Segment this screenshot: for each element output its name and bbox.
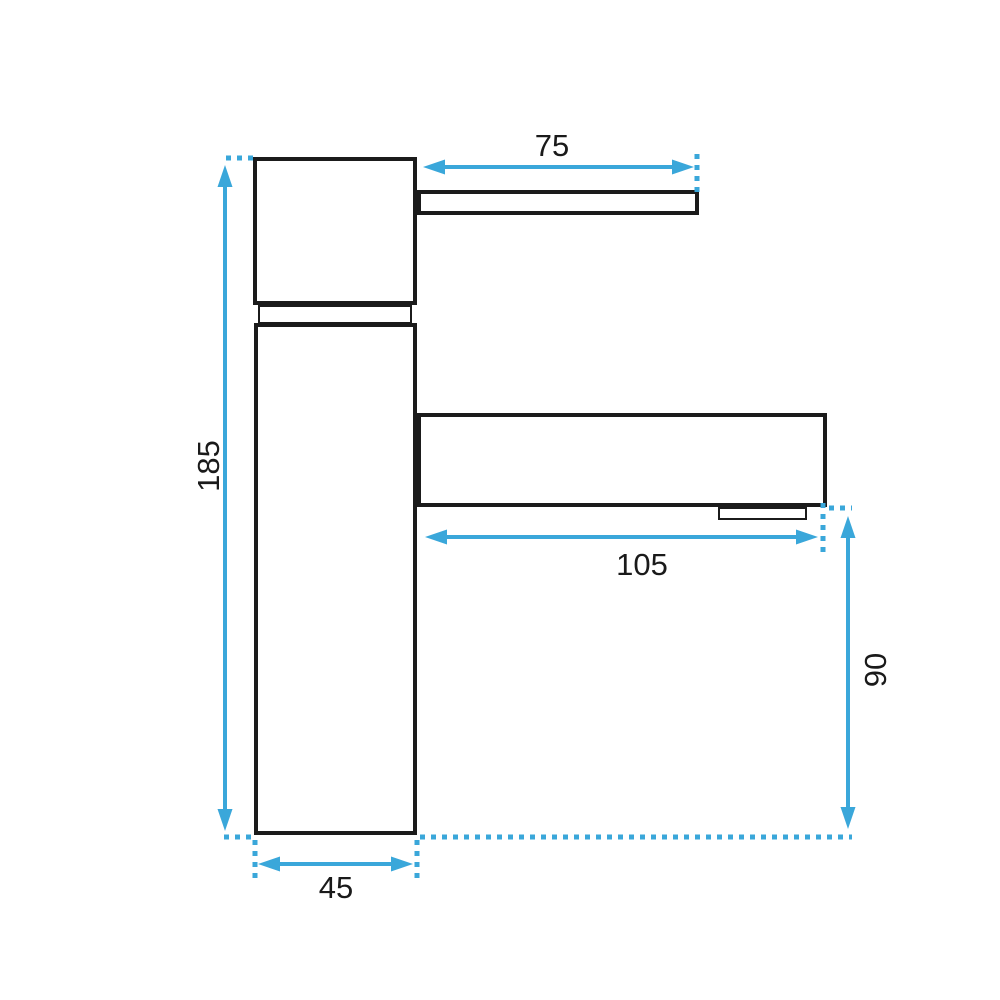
arrow-right-icon <box>391 857 413 872</box>
dimension-base-width: 45 <box>255 840 417 905</box>
arrow-left-icon <box>425 530 447 545</box>
faucet-aerator <box>719 508 806 519</box>
dimension-value-base-width: 45 <box>319 870 353 905</box>
technical-drawing-canvas: 75 185 105 90 <box>0 0 1000 1000</box>
dimension-value-spout-height: 90 <box>858 653 893 687</box>
dimension-handle-length: 75 <box>423 128 697 192</box>
arrow-up-icon <box>841 516 856 538</box>
dimension-value-spout-reach: 105 <box>616 547 668 582</box>
arrow-right-icon <box>796 530 818 545</box>
arrow-down-icon <box>218 809 233 831</box>
faucet-outline <box>255 159 825 833</box>
arrow-up-icon <box>218 165 233 187</box>
faucet-body-column <box>256 325 415 833</box>
faucet-spout <box>419 415 825 505</box>
faucet-neck-ring <box>259 306 411 323</box>
dimension-value-total-height: 185 <box>191 440 226 492</box>
arrow-down-icon <box>841 807 856 829</box>
faucet-handle-lever <box>419 192 697 213</box>
faucet-head-block <box>255 159 415 303</box>
arrow-left-icon <box>423 160 445 175</box>
faucet-dimension-diagram: 75 185 105 90 <box>0 0 1000 1000</box>
dimension-spout-height: 90 <box>829 508 893 829</box>
arrow-right-icon <box>672 160 694 175</box>
dimension-value-handle-length: 75 <box>535 128 569 163</box>
dimension-total-height: 185 <box>191 158 254 831</box>
arrow-left-icon <box>258 857 280 872</box>
